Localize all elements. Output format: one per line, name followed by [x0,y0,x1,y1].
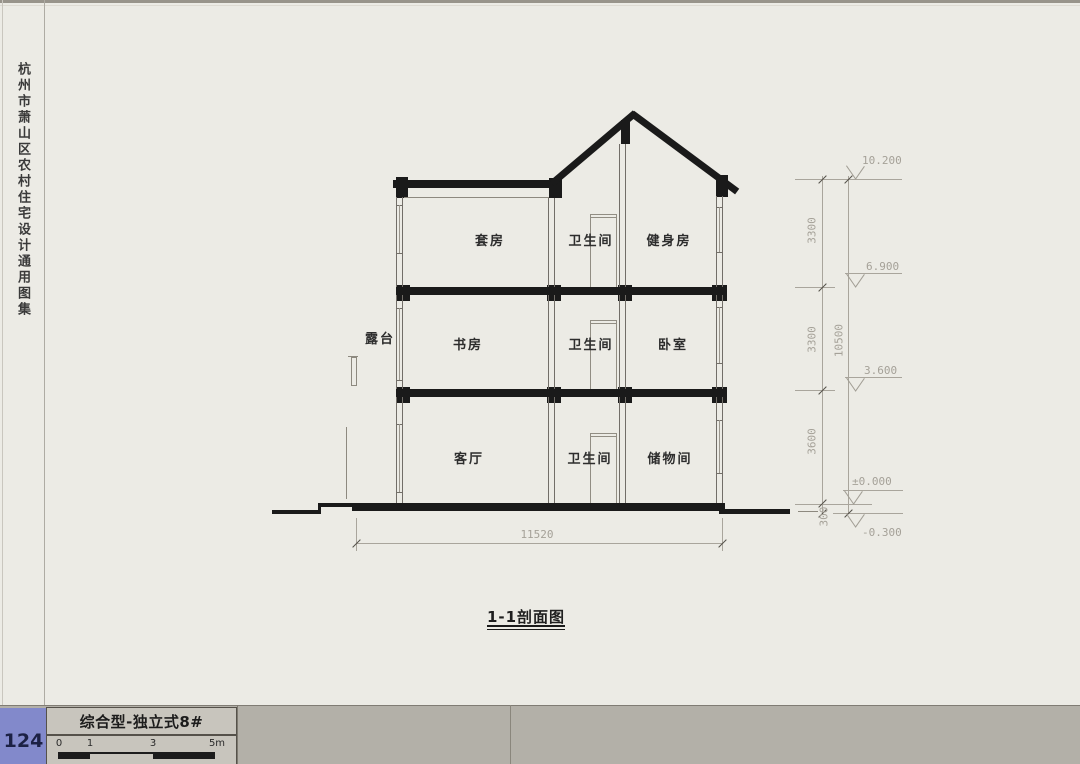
dim-text-10500: 10500 [833,319,846,363]
window-sill [716,363,723,364]
flat-roof-slab [393,180,561,188]
window-glazing [719,207,720,252]
scale-mark-0: 0 [56,738,62,749]
window-glazing [719,307,720,363]
title-underline-thin [487,629,565,630]
window-sill [396,492,403,493]
partition1-2f [548,295,555,389]
partition1-1f [548,397,555,503]
level-text-10200: 10.200 [862,154,902,167]
bathroom-door-2f [590,320,617,389]
page-left-edge [2,0,3,706]
dim-line-width [356,543,723,544]
dim-line-segments [822,176,823,514]
page-number-box: 124 [0,708,47,764]
dim-extension [795,390,835,391]
bathroom-door-1f [590,433,617,503]
partition2-3f [619,144,626,287]
room-label-bath-3f: 卫生间 [568,230,613,249]
atlas-page: 杭州市萧山区农村住宅设计通用图集 [0,0,1080,764]
page-number: 124 [4,730,44,752]
level-symbol-3600 [846,378,864,391]
scale-mark-1: 1 [87,738,93,749]
level-text-3600: 3.600 [864,364,897,377]
slab-2f [396,389,727,397]
bathroom-door-3f [590,214,617,287]
room-label-terrace: 露台 [365,328,395,347]
dim-line-total [848,176,849,514]
terrace-support-line [346,427,347,499]
window-glazing [399,424,400,492]
sheet-label-rule [47,734,236,736]
window-glazing [719,420,720,473]
title-underline-thick [487,625,565,627]
dim-text-3300-upper: 3300 [806,209,819,253]
room-label-gym: 健身房 [646,230,691,249]
roof-ridge-post [621,120,630,144]
level-symbol-0000 [844,491,862,504]
room-label-bath-2f: 卫生间 [568,334,613,353]
partition2-1f [619,397,626,503]
ground-line-right [722,509,790,514]
dim-extension [795,504,872,505]
footer-divider [510,705,511,764]
ground-line-right-thin [798,511,818,512]
dim-text-300: 300 [818,495,831,539]
ceiling-line-3f [404,197,549,198]
sidebar-atlas-title: 杭州市萧山区农村住宅设计通用图集 [13,62,41,318]
room-label-bedroom: 卧室 [658,334,688,353]
sidebar-divider [44,0,45,706]
dim-text-3600: 3600 [806,420,819,464]
level-text-minus0300: -0.300 [862,526,902,539]
dim-extension [356,518,357,551]
partition1-3f [548,198,555,287]
room-label-suite: 套房 [475,230,505,249]
roof-eave-block-right [716,175,728,197]
sheet-label: 综合型-独立式8# [47,711,236,732]
partition2-2f [619,295,626,389]
window-sill [716,252,723,253]
room-label-study: 书房 [453,334,483,353]
level-symbol-10200 [846,166,864,179]
roof-parapet-left [396,177,408,198]
window-sill [396,380,403,381]
level-line-minus0300 [833,513,903,514]
window-sill [716,473,723,474]
scale-bar-segment [153,754,215,759]
level-text-6900: 6.900 [866,260,899,273]
level-text-0000: ±0.000 [852,475,892,488]
slab-3f [396,287,727,295]
dim-text-3300-mid: 3300 [806,318,819,362]
drawing-title: 1-1剖面图 [487,606,565,627]
scale-mark-5m: 5m [209,738,225,749]
window-sill [396,253,403,254]
scale-bar-segment [58,754,90,759]
page-top-strip [0,0,1080,3]
ground-porch [320,503,352,507]
dim-extension [722,518,723,551]
room-label-storage: 储物间 [647,448,692,467]
ground-floor-slab [352,503,722,511]
dim-extension [795,287,835,288]
ground-line-left [272,510,320,514]
terrace-railing-cap [348,356,358,357]
dim-text-overall-width: 11520 [520,528,553,541]
room-label-bath-1f: 卫生间 [567,448,612,467]
footer-divider [237,705,238,764]
level-symbol-6900 [846,274,864,287]
page-top-line [0,5,1080,6]
sheet-label-panel: 综合型-独立式8# 0 1 3 5m [46,707,237,764]
scale-mark-3: 3 [150,738,156,749]
window-glazing [399,205,400,253]
window-glazing [399,308,400,380]
room-label-living: 客厅 [454,448,484,467]
terrace-railing-post [351,357,357,386]
